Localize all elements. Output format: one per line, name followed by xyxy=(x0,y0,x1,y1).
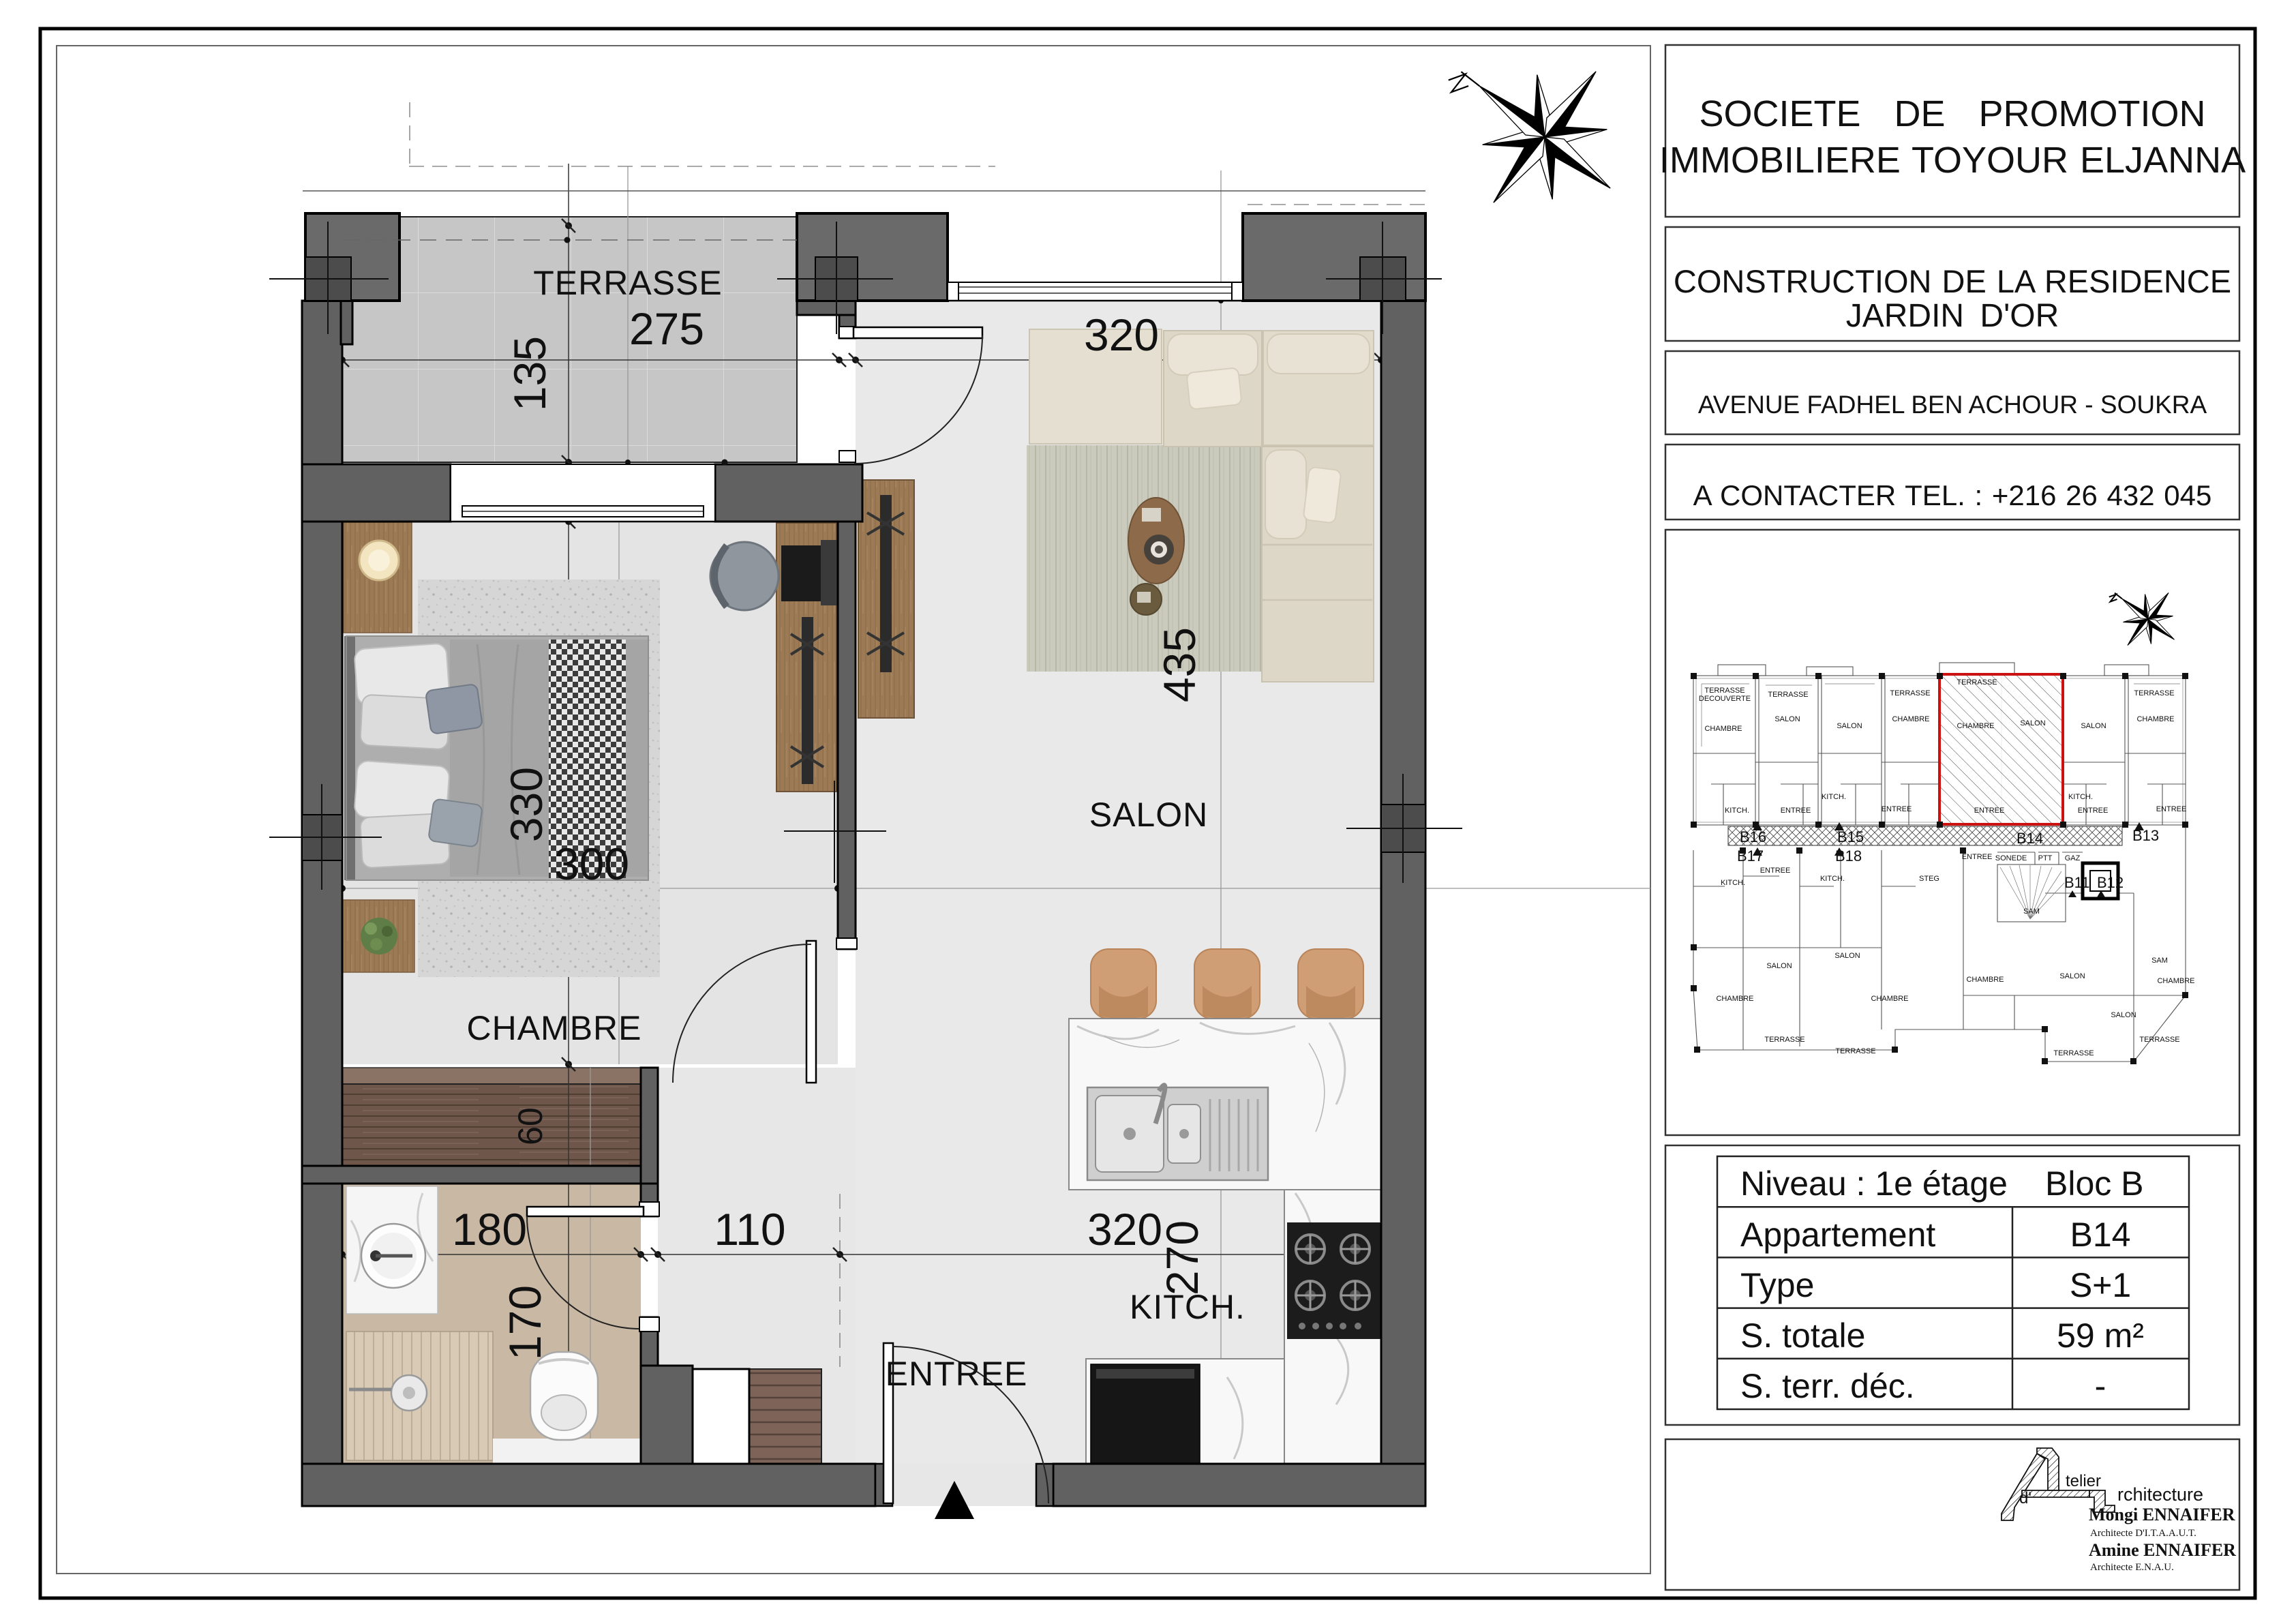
svg-text:SOCIETE DE PROMOTION: SOCIETE DE PROMOTION xyxy=(1699,93,2205,134)
svg-text:ENTREE: ENTREE xyxy=(1882,805,1912,813)
svg-text:d': d' xyxy=(2019,1489,2031,1507)
svg-text:telier: telier xyxy=(2066,1472,2101,1490)
svg-text:CHAMBRE: CHAMBRE xyxy=(2136,715,2174,723)
svg-text:KITCH.: KITCH. xyxy=(1822,793,1846,801)
svg-text:DECOUVERTE: DECOUVERTE xyxy=(1699,695,1751,703)
svg-text:rchitecture: rchitecture xyxy=(2117,1484,2203,1505)
svg-text:AVENUE FADHEL BEN ACHOUR - SOU: AVENUE FADHEL BEN ACHOUR - SOUKRA xyxy=(1698,391,2207,419)
svg-text:IMMOBILIERE TOYOUR ELJANNA: IMMOBILIERE TOYOUR ELJANNA xyxy=(1659,140,2246,181)
svg-text:B15: B15 xyxy=(1837,828,1864,845)
svg-text:KITCH.: KITCH. xyxy=(1130,1288,1245,1326)
svg-text:TERRASSE: TERRASSE xyxy=(2053,1049,2094,1057)
svg-text:S. totale: S. totale xyxy=(1740,1317,1865,1355)
svg-text:Type: Type xyxy=(1740,1266,1814,1304)
svg-text:SALON: SALON xyxy=(2081,722,2106,730)
svg-text:TERRASSE: TERRASSE xyxy=(1764,1036,1804,1044)
svg-text:SALON: SALON xyxy=(2111,1011,2136,1019)
svg-text:TERRASSE: TERRASSE xyxy=(2139,1036,2179,1044)
svg-text:Amine ENNAIFER: Amine ENNAIFER xyxy=(2089,1540,2236,1560)
svg-text:ENTREE: ENTREE xyxy=(1760,867,1791,875)
svg-text:TERRASSE: TERRASSE xyxy=(1890,689,1930,697)
svg-text:B11: B11 xyxy=(2064,874,2090,891)
svg-text:435: 435 xyxy=(1154,627,1205,702)
svg-text:SALON: SALON xyxy=(1089,796,1209,834)
svg-text:-: - xyxy=(2095,1367,2106,1405)
svg-text:B12: B12 xyxy=(2097,874,2124,891)
svg-text:SALON: SALON xyxy=(1834,952,1860,960)
svg-text:CHAMBRE: CHAMBRE xyxy=(466,1009,641,1047)
svg-text:STEG: STEG xyxy=(1919,875,1939,883)
svg-text:SALON: SALON xyxy=(2020,719,2045,727)
svg-text:59 m²: 59 m² xyxy=(2057,1317,2144,1355)
svg-text:270: 270 xyxy=(1157,1220,1207,1295)
svg-text:B17: B17 xyxy=(1737,847,1764,864)
svg-text:180: 180 xyxy=(452,1204,527,1254)
svg-text:B14: B14 xyxy=(2070,1216,2131,1254)
svg-text:ENTREE: ENTREE xyxy=(2156,805,2187,813)
svg-text:TERRASSE: TERRASSE xyxy=(2134,689,2174,697)
svg-text:Appartement: Appartement xyxy=(1740,1216,1935,1254)
svg-text:Architecte D'I.T.A.A.U.T.: Architecte D'I.T.A.A.U.T. xyxy=(2090,1528,2196,1539)
svg-text:CHAMBRE: CHAMBRE xyxy=(1957,722,1994,730)
svg-text:KITCH.: KITCH. xyxy=(1721,879,1745,887)
svg-text:CHAMBRE: CHAMBRE xyxy=(2157,977,2194,985)
svg-text:CHAMBRE: CHAMBRE xyxy=(1966,976,2004,984)
svg-text:ENTREE: ENTREE xyxy=(1781,807,1811,815)
svg-text:PTT: PTT xyxy=(2038,854,2053,862)
svg-text:ENTREE: ENTREE xyxy=(1974,807,2005,815)
svg-text:300: 300 xyxy=(554,839,629,889)
svg-text:CHAMBRE: CHAMBRE xyxy=(1704,725,1742,733)
svg-text:135: 135 xyxy=(504,336,555,411)
svg-text:ENTREE: ENTREE xyxy=(1962,853,1993,861)
svg-text:320: 320 xyxy=(1087,1204,1162,1254)
svg-text:KITCH.: KITCH. xyxy=(1820,875,1845,883)
svg-text:KITCH.: KITCH. xyxy=(2068,793,2093,801)
svg-text:275: 275 xyxy=(629,303,704,354)
svg-text:TERRASSE: TERRASSE xyxy=(1957,678,1997,687)
svg-text:330: 330 xyxy=(501,767,552,842)
svg-text:S+1: S+1 xyxy=(2070,1266,2131,1304)
svg-text:SALON: SALON xyxy=(2059,972,2085,980)
svg-text:A CONTACTER TEL. : +216 26 43: A CONTACTER TEL. : +216 26 432 045 xyxy=(1693,479,2212,511)
svg-text:60: 60 xyxy=(511,1107,549,1145)
svg-text:SAM: SAM xyxy=(2151,957,2168,965)
svg-text:SALON: SALON xyxy=(1837,722,1862,730)
svg-text:CONSTRUCTION DE LA RESIDENCE: CONSTRUCTION DE LA RESIDENCE xyxy=(1674,263,2231,299)
svg-text:CHAMBRE: CHAMBRE xyxy=(1892,715,1929,723)
svg-text:Architecte E.N.A.U.: Architecte E.N.A.U. xyxy=(2090,1562,2174,1573)
svg-text:Mongi ENNAIFER: Mongi ENNAIFER xyxy=(2089,1505,2235,1524)
svg-text:CHAMBRE: CHAMBRE xyxy=(1716,995,1753,1003)
svg-text:TERRASSE: TERRASSE xyxy=(1704,687,1744,695)
svg-text:320: 320 xyxy=(1084,310,1159,360)
svg-text:B16: B16 xyxy=(1740,828,1766,845)
svg-text:SALON: SALON xyxy=(1766,962,1792,970)
svg-text:Bloc B: Bloc B xyxy=(2045,1164,2144,1203)
svg-text:SALON: SALON xyxy=(1774,715,1800,723)
svg-text:CHAMBRE: CHAMBRE xyxy=(1871,995,1908,1003)
svg-text:Niveau : 1e étage: Niveau : 1e étage xyxy=(1740,1164,2008,1203)
svg-text:ENTREE: ENTREE xyxy=(2078,807,2109,815)
svg-text:GAZ: GAZ xyxy=(2065,854,2081,862)
svg-text:JARDIN D'OR: JARDIN D'OR xyxy=(1846,298,2059,334)
svg-text:TERRASSE: TERRASSE xyxy=(1768,691,1808,699)
svg-text:B14: B14 xyxy=(2016,830,2043,847)
svg-text:170: 170 xyxy=(500,1285,550,1360)
svg-text:SAM: SAM xyxy=(2023,907,2040,916)
svg-text:S. terr. déc.: S. terr. déc. xyxy=(1740,1367,1915,1405)
svg-text:110: 110 xyxy=(714,1204,785,1254)
svg-text:KITCH.: KITCH. xyxy=(1725,807,1749,815)
svg-text:SONEDE: SONEDE xyxy=(1995,854,2027,862)
svg-text:ENTREE: ENTREE xyxy=(886,1355,1028,1393)
svg-text:TERRASSE: TERRASSE xyxy=(1835,1047,1875,1055)
svg-text:TERRASSE: TERRASSE xyxy=(533,264,723,302)
